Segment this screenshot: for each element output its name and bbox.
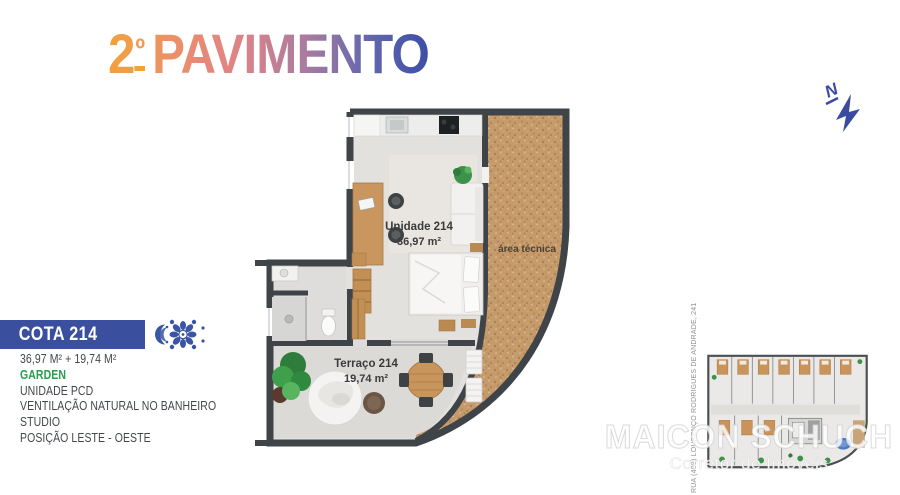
terrace-area-label: 19,74 m² bbox=[344, 373, 388, 385]
title-ordinal: º bbox=[135, 33, 146, 71]
title-word: PAVIMENTO bbox=[152, 22, 429, 85]
unit-label: Unidade 214 bbox=[385, 221, 453, 233]
terrace-label: Terraço 214 bbox=[334, 358, 398, 370]
kitchen bbox=[354, 115, 482, 136]
street-address: RUA (408) LOURENÇO RODRIGUES DE ANDRADE,… bbox=[691, 327, 701, 493]
title-number: 2 bbox=[108, 22, 135, 85]
cota-banner: COTA 214 bbox=[0, 320, 147, 349]
unit-info-list: 36,97 M² + 19,74 M² GARDEN UNIDADE PCD V… bbox=[20, 352, 238, 447]
azulejo-tile-icon bbox=[145, 318, 209, 351]
feature-item: VENTILAÇÃO NATURAL NO BANHEIRO bbox=[20, 399, 238, 415]
feature-garden: GARDEN bbox=[20, 368, 238, 384]
building-key-plan bbox=[702, 346, 874, 478]
feature-item: POSIÇÃO LESTE - OESTE bbox=[20, 431, 238, 447]
svg-text:N: N bbox=[822, 79, 842, 102]
cota-label: COTA 214 bbox=[0, 324, 97, 346]
areas-text: 36,97 M² + 19,74 M² bbox=[20, 352, 238, 368]
unit-area-label: 36,97 m² bbox=[397, 236, 441, 248]
feature-item: STUDIO bbox=[20, 415, 238, 431]
feature-item: UNIDADE PCD bbox=[20, 384, 238, 400]
north-compass-icon: N bbox=[818, 76, 874, 136]
technical-area-label: área técnica bbox=[498, 244, 556, 255]
floor-plan: Unidade 214 36,97 m² área técnica Terraç… bbox=[253, 103, 583, 451]
page-title: 2ºPAVIMENTO bbox=[108, 26, 429, 82]
